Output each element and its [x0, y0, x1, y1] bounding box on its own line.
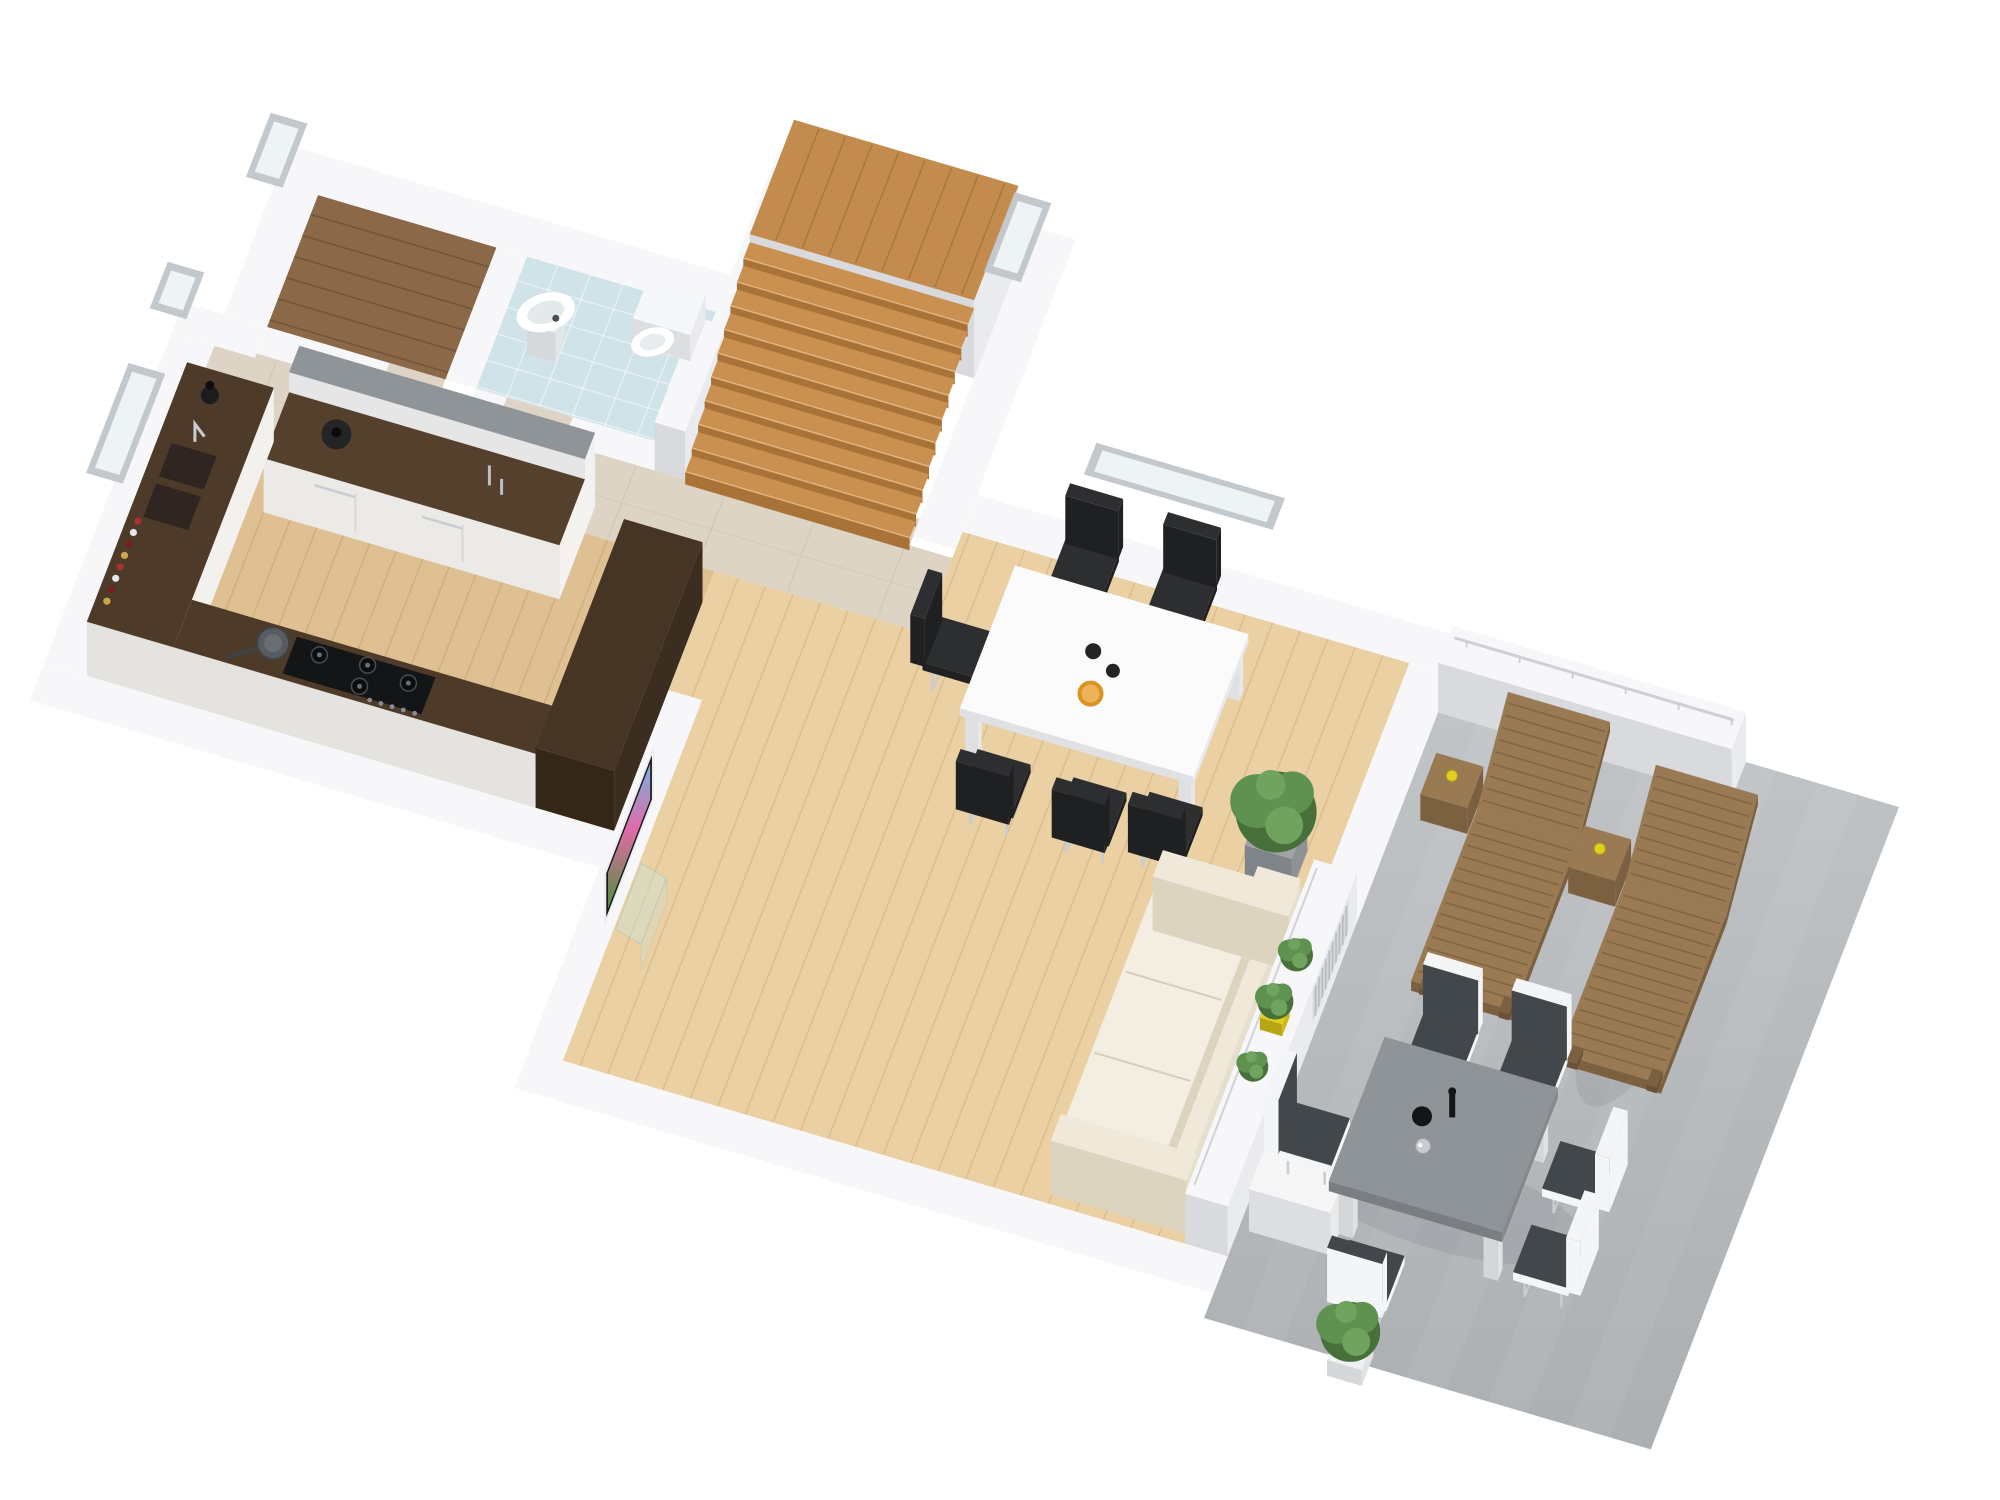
vase-icon	[1412, 1106, 1432, 1126]
spice-jar-icon	[130, 529, 137, 536]
spice-jar-icon	[103, 598, 110, 605]
spice-jar-icon	[125, 540, 132, 547]
drink-icon	[1594, 843, 1605, 854]
patio-plant	[1316, 1301, 1380, 1386]
floor-plan-render	[0, 0, 2000, 1500]
spice-jar-icon	[112, 575, 119, 582]
spice-jar-icon	[121, 552, 128, 559]
staircase	[655, 120, 1076, 551]
spice-jar-icon	[134, 518, 141, 525]
spice-jar-icon	[108, 586, 115, 593]
drink-icon	[1446, 770, 1457, 781]
chrome-vase-icon	[1416, 1139, 1431, 1154]
bowl-icon	[1106, 664, 1120, 678]
spice-jar-icon	[117, 563, 124, 570]
bowl-icon	[1085, 643, 1101, 659]
floor-plan-canvas	[0, 0, 2000, 1500]
